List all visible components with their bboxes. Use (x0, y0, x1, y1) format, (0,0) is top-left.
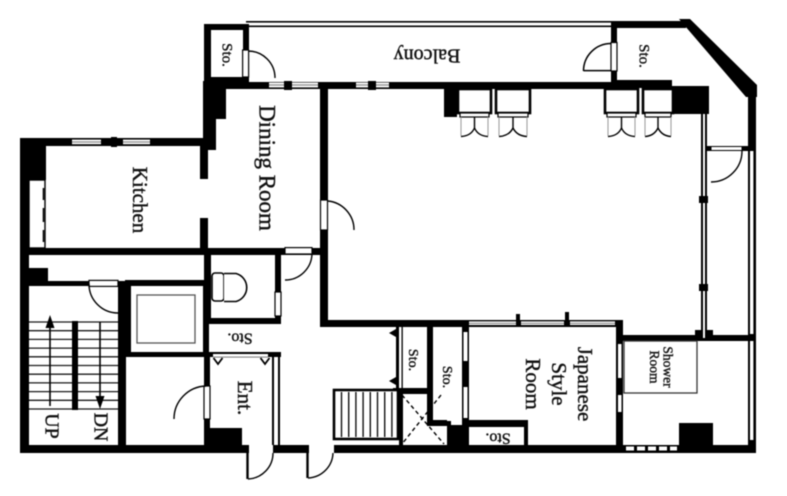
svg-text:Kitchen: Kitchen (128, 167, 152, 234)
svg-text:Sto.: Sto. (405, 349, 420, 371)
svg-text:Sto.: Sto. (219, 43, 235, 67)
svg-text:Sto.: Sto. (227, 329, 252, 346)
svg-text:Balcony: Balcony (394, 44, 461, 66)
svg-text:Sto.: Sto. (636, 44, 652, 68)
svg-text:Sto.: Sto. (485, 429, 510, 446)
svg-text:UP: UP (40, 413, 62, 439)
svg-text:Ent.: Ent. (233, 381, 257, 415)
svg-text:Dining Room: Dining Room (255, 105, 280, 231)
svg-text:DN: DN (89, 413, 111, 442)
svg-text:ShowerRoom: ShowerRoom (647, 346, 676, 388)
svg-text:Sto.: Sto. (439, 366, 454, 388)
